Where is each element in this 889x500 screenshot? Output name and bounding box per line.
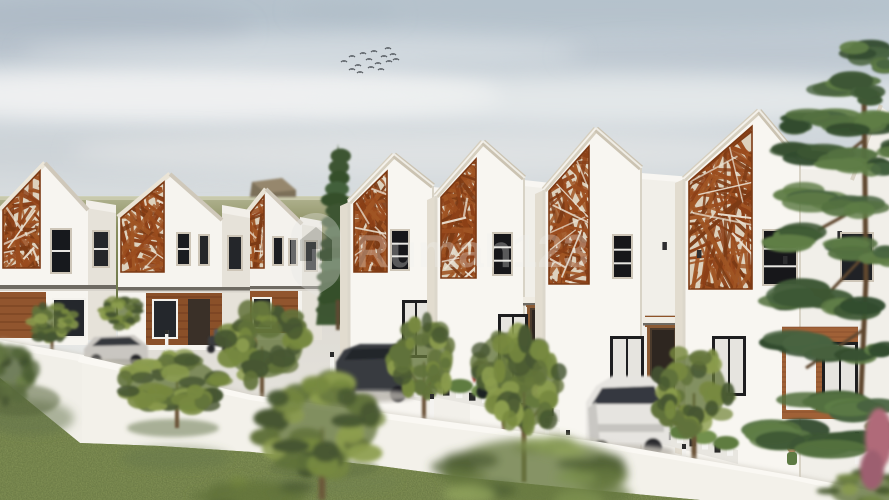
svg-text:Rumah123: Rumah123 [356, 225, 589, 277]
